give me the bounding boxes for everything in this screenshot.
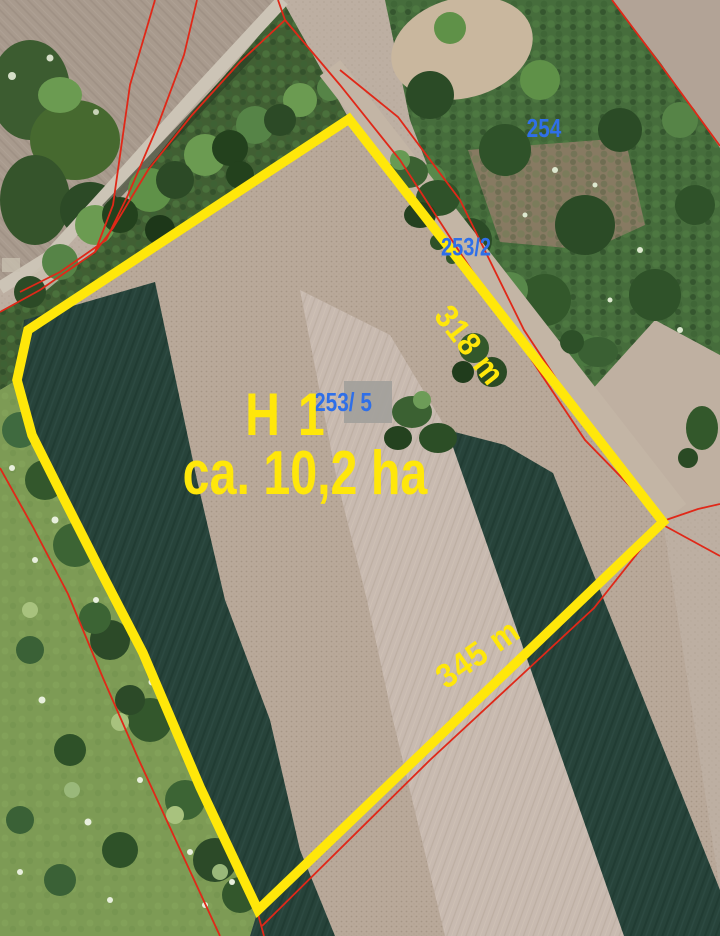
parcel-number-253-2: 253/2 (441, 236, 491, 261)
highlighted-area-name: H 1 (245, 385, 325, 445)
highlighted-area-size: ca. 10,2 ha (183, 443, 428, 505)
aerial-map-screenshot: 254 253/2 253/ 5 H 1 ca. 10,2 ha 318 m 3… (0, 0, 720, 936)
parcel-number-254: 254 (527, 115, 562, 141)
